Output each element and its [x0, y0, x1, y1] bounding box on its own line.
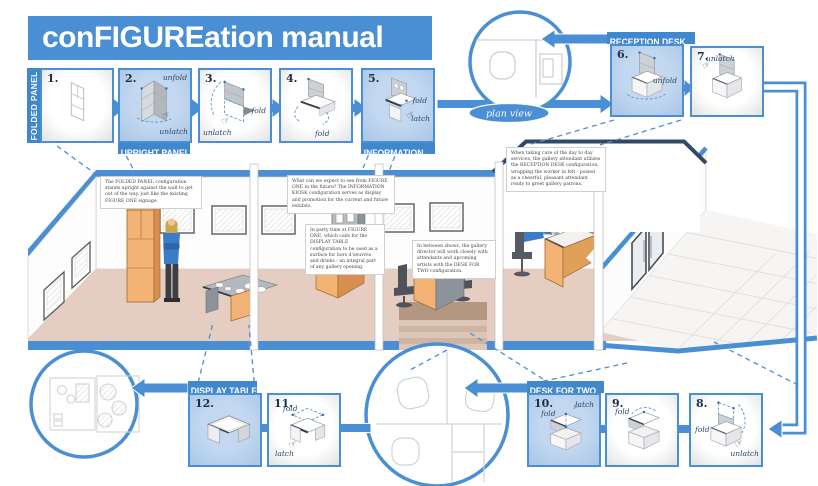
note-information: What can we expect to see from FIGURE ON…	[287, 175, 395, 214]
configuration-manual-poster: FIGURE ONE FIGURE ONE	[0, 0, 818, 486]
svg-text:☞: ☞	[220, 115, 232, 128]
plan-view-circle-desk-for-two	[366, 344, 508, 486]
plan-view-label: plan view	[486, 109, 532, 120]
step-4-box: 4. fold	[279, 68, 353, 143]
label-reception-desk: RECEPTION DESK	[607, 32, 695, 44]
step-3-box: 3. ☞ fold unlatch	[198, 68, 272, 143]
step-number: 6.	[617, 48, 628, 61]
folded-panel-furniture	[127, 205, 160, 302]
step-number: 4.	[286, 72, 297, 85]
label-folded-panel: FOLDED PANEL	[27, 68, 40, 143]
step-1-box: 1.	[40, 68, 114, 143]
step-number: 12.	[195, 397, 214, 410]
annotation: fold	[283, 404, 298, 413]
unlatch-hand-icon: ☞	[160, 109, 172, 123]
step-number: 5.	[368, 72, 379, 85]
step-number: 1.	[47, 72, 58, 85]
note-folded-panel: The FOLDED PANEL configuration stands up…	[100, 176, 202, 209]
label-information: INFORMATION	[361, 143, 435, 154]
annotation: unlatch	[706, 54, 735, 63]
step-2-box: 2. ☞ unfold unlatch	[118, 68, 192, 143]
step-number: 2.	[125, 72, 136, 85]
step-7-box: 7. ☞ unlatch	[690, 46, 764, 117]
step-8-box: 8. ☞ fold unlatch	[689, 393, 763, 467]
label-upright-panel: UPRIGHT PANEL	[118, 143, 190, 154]
annotation: unfold	[163, 73, 187, 82]
label-desk-for-two: DESK FOR TWO	[527, 381, 604, 393]
annotation: unfold	[653, 76, 677, 85]
annotation: latch	[275, 449, 294, 458]
step-6-box: 6. unfold	[610, 44, 684, 117]
plan-view-circle-reception	[470, 12, 570, 112]
svg-text:☞: ☞	[160, 109, 172, 123]
step-5-box: 5. ☞ fold latch	[361, 68, 435, 143]
step-11-box: 11. ☞ fold latch	[267, 393, 341, 467]
annotation: fold	[252, 106, 267, 115]
page-title: conFIGUREation manual	[28, 16, 432, 60]
step-number: 3.	[205, 72, 216, 85]
annotation: unlatch	[730, 449, 759, 458]
step-9-box: 9. fold	[605, 393, 679, 467]
note-desk-for-two: In between shows, the gallery director w…	[412, 240, 496, 279]
annotation: latch	[411, 114, 430, 123]
step-10-box: 10. ☞ fold latch	[527, 393, 601, 467]
plan-view-badge: plan view	[469, 104, 549, 123]
annotation: unlatch	[159, 127, 188, 136]
step-12-box: 12.	[188, 393, 262, 467]
title-banner: conFIGUREation manual	[28, 16, 432, 60]
step-number: 8.	[696, 397, 707, 410]
plan-view-circle-display-table	[31, 351, 139, 457]
annotation: fold	[541, 409, 556, 418]
annotation: fold	[315, 129, 330, 138]
note-reception: When taking care of the day to day servi…	[506, 147, 606, 192]
annotation: unlatch	[203, 128, 232, 137]
unlatch-hand-icon: ☞	[220, 115, 232, 128]
note-display-table: In party time at FIGURE ONE, which calls…	[305, 224, 385, 275]
annotation: latch	[575, 400, 594, 409]
annotation: fold	[695, 425, 710, 434]
annotation: fold	[615, 407, 630, 416]
annotation: fold	[413, 96, 428, 105]
label-display-table: DISPLAY TABLE	[188, 381, 257, 393]
arrow-into-display-plan-circle	[131, 378, 188, 398]
